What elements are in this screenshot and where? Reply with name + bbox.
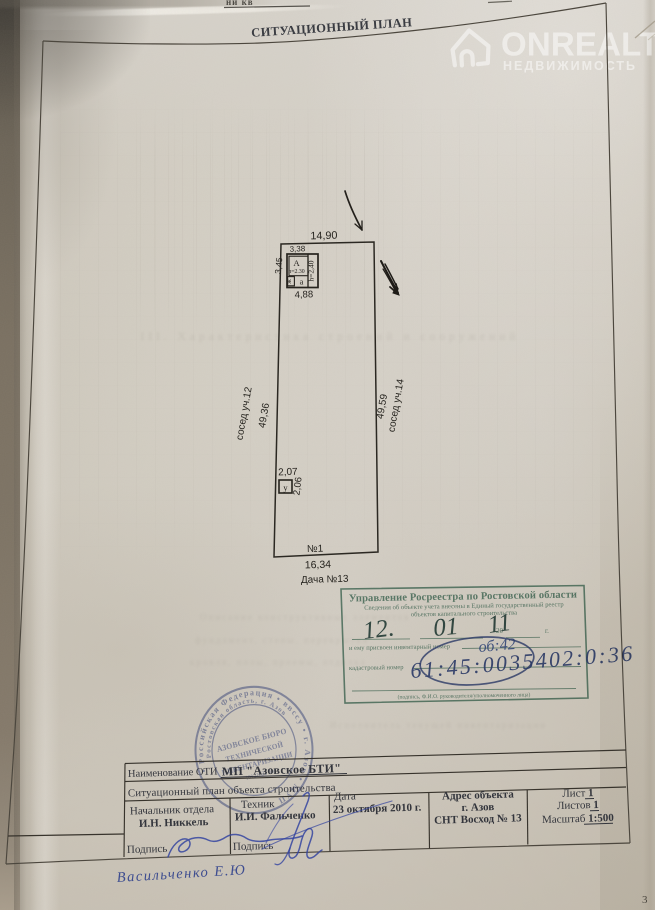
svg-text:III. Характеристика строений и: III. Характеристика строений и сооружени… xyxy=(140,331,519,343)
svg-text:12.: 12. xyxy=(361,614,395,645)
svg-text:2,06: 2,06 xyxy=(291,476,304,496)
svg-text:01: 01 xyxy=(432,613,459,642)
svg-text:№1: №1 xyxy=(307,544,324,555)
svg-text:16,34: 16,34 xyxy=(305,559,332,572)
svg-text:11: 11 xyxy=(486,609,513,639)
svg-text:3,45: 3,45 xyxy=(273,257,285,275)
svg-text:Дата: Дата xyxy=(334,790,356,803)
svg-text:h=2,40: h=2,40 xyxy=(306,260,315,281)
svg-text:Адрес объекта: Адрес объекта xyxy=(442,788,514,802)
svg-text:14,90: 14,90 xyxy=(310,230,337,243)
svg-text:h=2.30: h=2.30 xyxy=(288,269,304,275)
svg-text:СНТ Восход № 13: СНТ Восход № 13 xyxy=(434,812,522,826)
svg-text:Подпись: Подпись xyxy=(127,843,168,856)
svg-text:ж: ж xyxy=(286,279,293,285)
svg-text:г. Азов: г. Азов xyxy=(461,801,494,814)
svg-text:И.Н. Никкель: И.Н. Никкель xyxy=(139,816,209,830)
svg-text:кадастровый номер: кадастровый номер xyxy=(349,664,404,672)
svg-text:Листов 1: Листов 1 xyxy=(557,799,599,812)
svg-text:а: а xyxy=(300,277,304,287)
svg-text:Исполнитель текущей инвентариз: Исполнитель текущей инвентаризации xyxy=(330,720,547,730)
svg-text:г.: г. xyxy=(545,627,549,635)
svg-text:23 октября 2010 г.: 23 октября 2010 г. xyxy=(333,802,422,816)
svg-text:Дача №13: Дача №13 xyxy=(301,574,349,586)
svg-text:Техник: Техник xyxy=(241,798,276,811)
svg-text:А: А xyxy=(293,258,300,268)
svg-text:3: 3 xyxy=(642,894,648,906)
svg-text:ONREALT: ONREALT xyxy=(501,26,655,63)
svg-text:Лист 1: Лист 1 xyxy=(562,787,594,800)
svg-text:НЕДВИЖИМОСТЬ: НЕДВИЖИМОСТЬ xyxy=(503,59,637,73)
svg-text:кровля, полы, проемы, отделка: кровля, полы, проемы, отделка xyxy=(190,657,367,667)
svg-text:3,38: 3,38 xyxy=(289,244,305,254)
svg-text:ни кв: ни кв xyxy=(226,0,254,7)
svg-text:4,88: 4,88 xyxy=(294,289,313,301)
